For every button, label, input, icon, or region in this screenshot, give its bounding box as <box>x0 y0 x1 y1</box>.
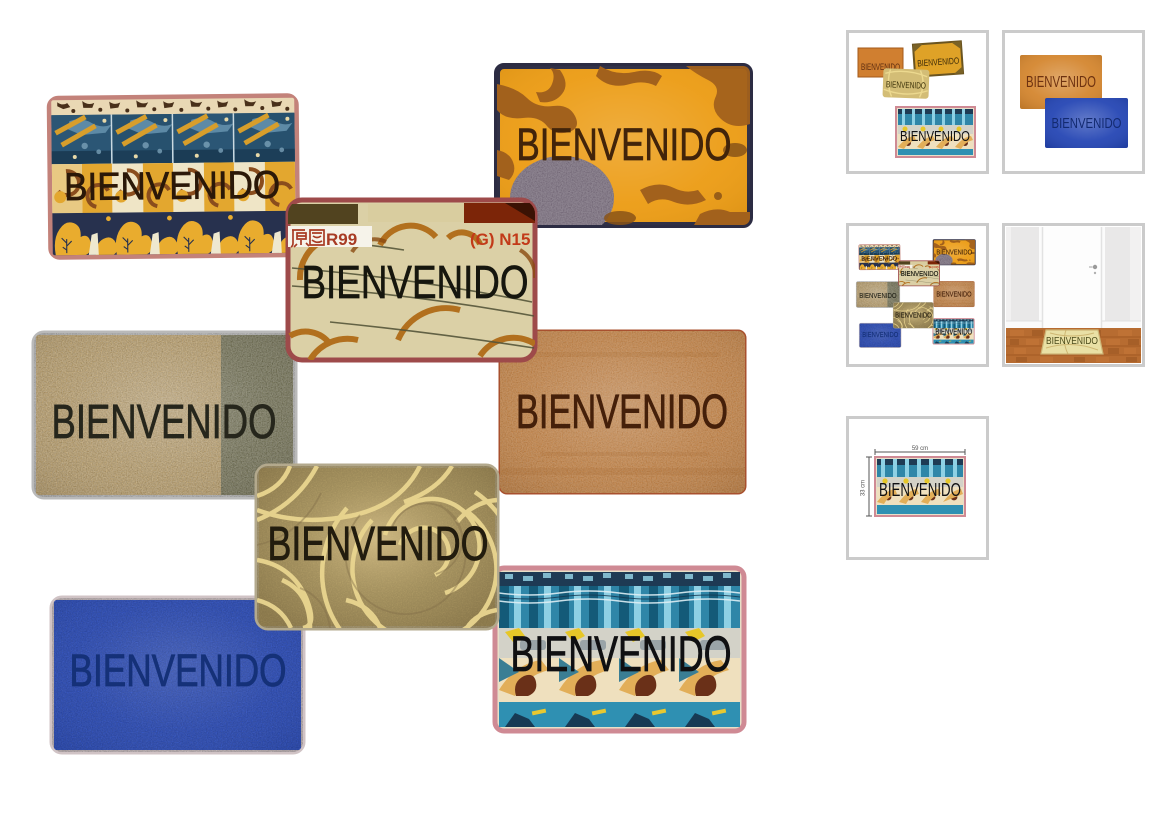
svg-text:BIENVENIDO: BIENVENIDO <box>900 128 970 145</box>
svg-text:BIENVENIDO: BIENVENIDO <box>879 480 961 500</box>
svg-text:BIENVENIDO: BIENVENIDO <box>1026 74 1096 91</box>
svg-text:59 cm: 59 cm <box>912 446 928 452</box>
svg-text:BIENVENIDO: BIENVENIDO <box>886 79 926 90</box>
svg-text:BIENVENIDO: BIENVENIDO <box>1052 115 1122 132</box>
svg-text:BIENVENIDO: BIENVENIDO <box>1046 336 1098 347</box>
svg-text:33 cm: 33 cm <box>861 480 867 496</box>
